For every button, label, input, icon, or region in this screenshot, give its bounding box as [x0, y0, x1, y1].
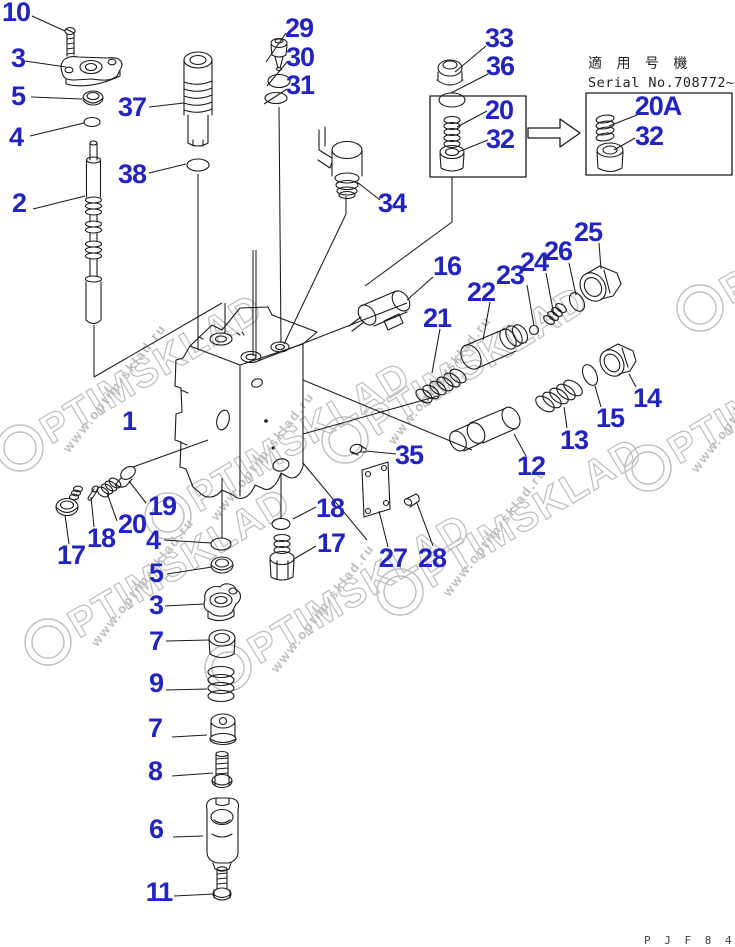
- callout-32: 32: [635, 121, 663, 151]
- leader-line: [165, 604, 204, 606]
- part-ring: [265, 93, 287, 104]
- leader-line: [174, 894, 214, 896]
- assembly-axis-lines: [94, 107, 472, 540]
- callout-28: 28: [418, 543, 447, 573]
- callout-17: 17: [317, 528, 345, 558]
- part-pilot-solenoid: [349, 288, 413, 331]
- callout-16: 16: [433, 251, 462, 281]
- callout-30: 30: [286, 42, 314, 72]
- callout-7: 7: [149, 626, 163, 656]
- leader-line: [407, 277, 433, 300]
- callout-2: 2: [12, 188, 26, 218]
- callout-17: 17: [57, 540, 85, 570]
- leader-line: [366, 451, 396, 454]
- callout-10: 10: [2, 0, 30, 27]
- leader-line: [294, 546, 316, 559]
- part-bolt: [213, 867, 231, 900]
- part-spring: [533, 377, 585, 415]
- part-bolt: [212, 752, 232, 788]
- part-cover-plate: [362, 462, 390, 517]
- callout-12: 12: [517, 451, 545, 481]
- callout-32: 32: [486, 124, 514, 154]
- callout-9: 9: [149, 668, 164, 698]
- part-plug-spring: [270, 535, 294, 581]
- leader-line: [33, 196, 85, 209]
- part-spool: [86, 141, 102, 324]
- leader-line: [25, 61, 66, 67]
- leader-line: [457, 111, 487, 127]
- revision-arrow-icon: [528, 119, 580, 147]
- callout-24: 24: [520, 247, 549, 277]
- callout-15: 15: [596, 403, 625, 433]
- leader-line: [107, 493, 117, 521]
- callout-22: 22: [467, 277, 495, 307]
- callout-18: 18: [316, 493, 345, 523]
- callout-7: 7: [148, 713, 162, 743]
- callout-8: 8: [148, 756, 163, 786]
- applicable-machine-label: 適 用 号 機: [588, 55, 692, 72]
- callout-33: 33: [485, 23, 514, 53]
- leader-line: [455, 46, 486, 72]
- leader-line: [32, 16, 65, 31]
- callout-36: 36: [486, 51, 515, 81]
- watermark: PTIMSKLADwww.optim-sklad.ru: [0, 285, 271, 471]
- parts-diagram-page: PTIMSKLADwww.optim-sklad.ruPTIMSKLADwww.…: [0, 0, 735, 947]
- callout-6: 6: [149, 814, 164, 844]
- callout-26: 26: [544, 236, 573, 266]
- part-spring-seat: [210, 714, 236, 745]
- part-spring-small: [95, 476, 122, 499]
- leader-line: [129, 481, 146, 503]
- exploded-parts-diagram: PTIMSKLADwww.optim-sklad.ruPTIMSKLADwww.…: [0, 0, 735, 947]
- part-spring-vertical: [444, 117, 460, 148]
- part-cap-plug: [437, 60, 463, 85]
- callout-23: 23: [496, 260, 525, 290]
- callout-37: 37: [118, 92, 146, 122]
- part-flange-plate: [204, 584, 240, 621]
- callout-13: 13: [560, 425, 589, 455]
- callout-34: 34: [378, 188, 407, 218]
- callout-25: 25: [574, 217, 603, 247]
- watermark: PTIMSKLADwww.optim-sklad.ru: [677, 145, 735, 331]
- callout-29: 29: [285, 13, 314, 43]
- callout-numbers: 1035437382293031343336203220A32252624231…: [2, 0, 682, 907]
- leader-line: [173, 836, 203, 837]
- callout-4: 4: [146, 525, 161, 555]
- leader-line: [149, 103, 184, 107]
- part-o-ring: [84, 118, 100, 127]
- callout-20: 20: [118, 509, 146, 539]
- drawing-code: P J F 8 4 3 4: [644, 934, 735, 947]
- serial-number-label: Serial No.708772~: [588, 75, 735, 91]
- leader-lines: [25, 16, 637, 896]
- part-valve-cartridge: [184, 52, 212, 146]
- part-plug: [56, 486, 83, 515]
- part-solenoid-valve: [318, 127, 362, 199]
- watermark-layer: PTIMSKLADwww.optim-sklad.ruPTIMSKLADwww.…: [0, 145, 735, 691]
- part-spring-vertical: [596, 114, 615, 142]
- watermark-brand: PTIMSKLAD: [33, 285, 271, 452]
- part-o-ring: [187, 159, 209, 171]
- leader-line: [166, 689, 207, 690]
- leader-line: [172, 735, 207, 737]
- callout-38: 38: [118, 159, 147, 189]
- callout-20: 20: [485, 95, 513, 125]
- callout-5: 5: [11, 81, 26, 111]
- leader-line: [30, 123, 84, 136]
- leader-line: [379, 511, 388, 547]
- leader-line: [293, 507, 316, 519]
- part-piston: [446, 404, 523, 454]
- callout-3: 3: [149, 590, 164, 620]
- leader-line: [133, 440, 208, 467]
- callout-31: 31: [286, 70, 315, 100]
- callout-19: 19: [148, 491, 177, 521]
- callout-18: 18: [87, 523, 116, 553]
- leader-line: [166, 640, 209, 641]
- callout-4: 4: [9, 122, 24, 152]
- callout-5: 5: [149, 558, 164, 588]
- part-o-ring: [439, 93, 465, 107]
- callout-21: 21: [423, 303, 452, 333]
- part-o-ring: [579, 362, 600, 387]
- part-cap-seal: [83, 91, 103, 105]
- part-poppet: [116, 464, 138, 487]
- part-seat-plug: [440, 146, 464, 172]
- part-valve-block: [207, 798, 239, 871]
- axis-line: [279, 107, 281, 343]
- part-flange-plate: [61, 57, 122, 86]
- leader-line: [458, 140, 488, 152]
- callout-35: 35: [395, 440, 424, 470]
- callout-27: 27: [379, 543, 407, 573]
- part-bolt: [65, 28, 75, 57]
- axis-line: [284, 214, 346, 344]
- leader-line: [31, 97, 82, 99]
- callout-11: 11: [146, 877, 174, 907]
- callout-1: 1: [122, 406, 137, 436]
- callout-20A: 20A: [635, 91, 682, 121]
- leader-line: [357, 182, 380, 200]
- leader-line: [172, 773, 213, 776]
- leader-line: [149, 164, 186, 173]
- callout-3: 3: [11, 43, 26, 73]
- callout-14: 14: [633, 383, 662, 413]
- part-pin: [403, 494, 419, 507]
